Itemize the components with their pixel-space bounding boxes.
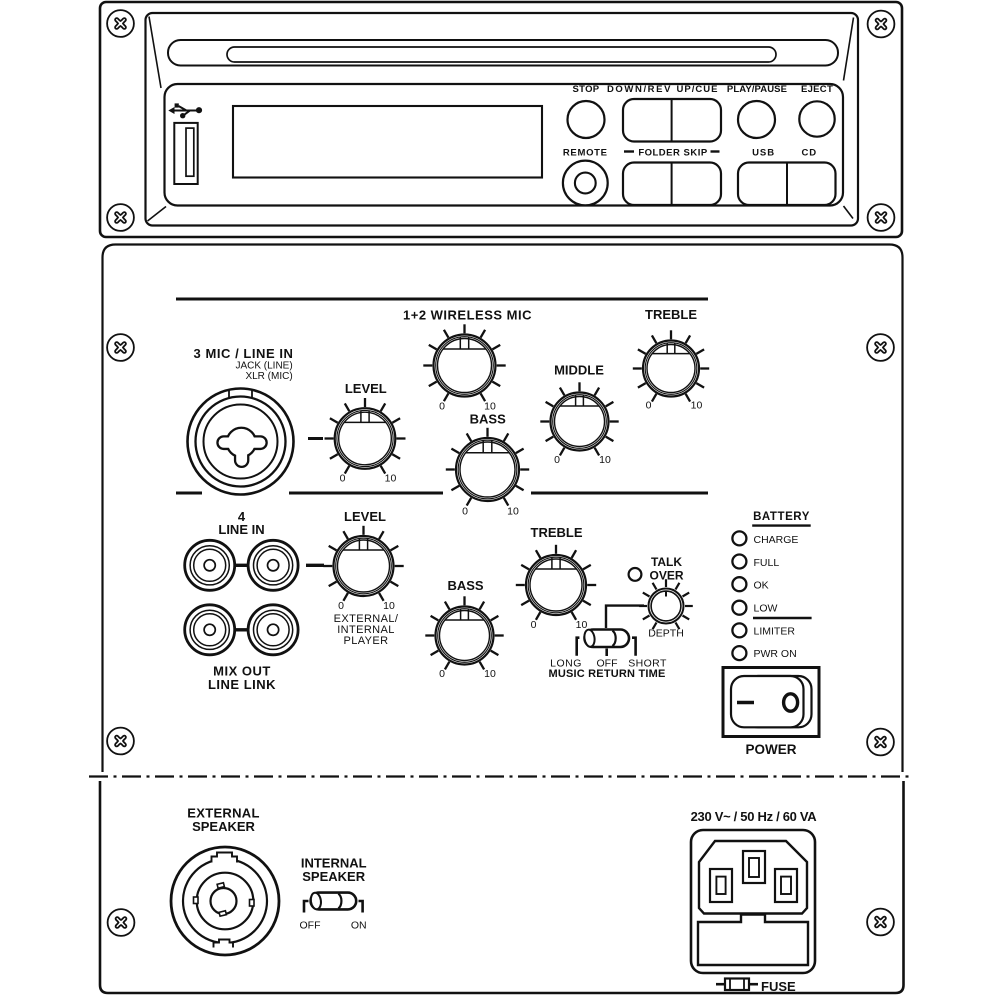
svg-text:TREBLE: TREBLE bbox=[531, 525, 583, 540]
svg-text:10: 10 bbox=[576, 619, 588, 631]
svg-text:SPEAKER: SPEAKER bbox=[192, 819, 255, 834]
svg-text:FOLDER SKIP: FOLDER SKIP bbox=[638, 147, 708, 158]
svg-text:3 MIC / LINE IN: 3 MIC / LINE IN bbox=[194, 346, 294, 361]
svg-text:0: 0 bbox=[554, 454, 560, 466]
svg-text:BASS: BASS bbox=[470, 411, 506, 426]
svg-text:LINE LINK: LINE LINK bbox=[208, 677, 276, 692]
svg-text:1+2 WIRELESS MIC: 1+2 WIRELESS MIC bbox=[403, 308, 532, 323]
svg-text:BASS: BASS bbox=[447, 578, 483, 593]
svg-text:JACK (LINE): JACK (LINE) bbox=[235, 361, 292, 372]
svg-text:DOWN/REV: DOWN/REV bbox=[607, 84, 672, 95]
svg-text:FULL: FULL bbox=[754, 557, 780, 569]
svg-text:TREBLE: TREBLE bbox=[645, 307, 697, 322]
svg-text:10: 10 bbox=[507, 505, 519, 517]
svg-text:MIDDLE: MIDDLE bbox=[554, 363, 604, 378]
svg-text:PWR ON: PWR ON bbox=[754, 648, 797, 660]
svg-text:10: 10 bbox=[484, 668, 496, 680]
svg-text:10: 10 bbox=[385, 473, 397, 485]
svg-text:USB: USB bbox=[752, 147, 775, 158]
svg-text:230 V~ / 50 Hz / 60 VA: 230 V~ / 50 Hz / 60 VA bbox=[691, 809, 818, 824]
svg-text:OK: OK bbox=[754, 579, 769, 591]
svg-text:0: 0 bbox=[646, 399, 652, 411]
svg-text:SPEAKER: SPEAKER bbox=[302, 869, 365, 884]
svg-text:0: 0 bbox=[340, 473, 346, 485]
svg-text:CD: CD bbox=[802, 147, 817, 158]
svg-text:LINE IN: LINE IN bbox=[218, 522, 264, 537]
svg-text:OFF: OFF bbox=[300, 920, 321, 932]
svg-text:0: 0 bbox=[439, 668, 445, 680]
svg-text:0: 0 bbox=[531, 619, 537, 631]
svg-text:UP/CUE: UP/CUE bbox=[677, 84, 719, 95]
svg-text:LEVEL: LEVEL bbox=[344, 509, 386, 524]
svg-text:LOW: LOW bbox=[754, 602, 778, 614]
svg-text:MUSIC RETURN TIME: MUSIC RETURN TIME bbox=[548, 668, 665, 680]
svg-text:LEVEL: LEVEL bbox=[345, 381, 387, 396]
svg-text:BATTERY: BATTERY bbox=[753, 511, 810, 523]
svg-text:ON: ON bbox=[351, 920, 367, 932]
svg-text:CHARGE: CHARGE bbox=[754, 534, 799, 546]
svg-text:10: 10 bbox=[691, 399, 703, 411]
svg-text:XLR (MIC): XLR (MIC) bbox=[245, 371, 292, 382]
svg-text:EJECT: EJECT bbox=[801, 84, 833, 95]
svg-text:0: 0 bbox=[439, 401, 445, 413]
svg-text:LIMITER: LIMITER bbox=[754, 626, 796, 638]
svg-text:TALK: TALK bbox=[651, 555, 682, 569]
svg-text:0: 0 bbox=[462, 505, 468, 517]
svg-text:PLAY/PAUSE: PLAY/PAUSE bbox=[727, 84, 787, 95]
svg-text:0: 0 bbox=[338, 600, 344, 612]
svg-text:POWER: POWER bbox=[745, 742, 796, 757]
svg-text:10: 10 bbox=[383, 600, 395, 612]
svg-text:PLAYER: PLAYER bbox=[344, 635, 389, 647]
svg-text:DEPTH: DEPTH bbox=[648, 628, 684, 640]
svg-text:STOP: STOP bbox=[573, 84, 600, 95]
svg-text:10: 10 bbox=[599, 454, 611, 466]
svg-text:REMOTE: REMOTE bbox=[563, 147, 608, 158]
svg-text:FUSE: FUSE bbox=[761, 979, 796, 994]
